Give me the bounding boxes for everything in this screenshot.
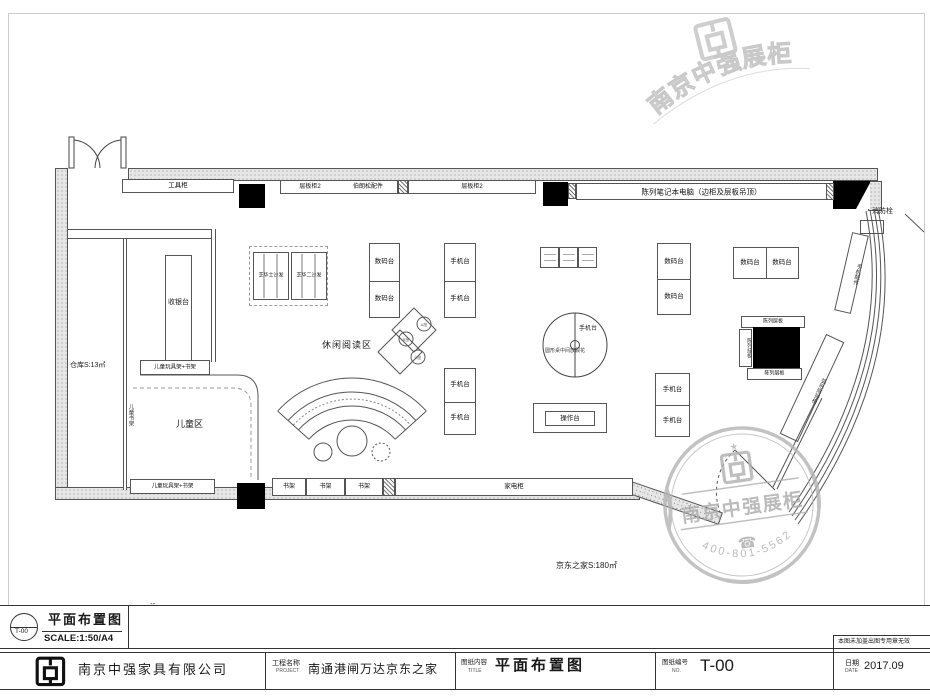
fire-hydrant-leader bbox=[905, 214, 924, 232]
company-logo bbox=[34, 655, 74, 691]
titleblock-div-1 bbox=[265, 652, 266, 689]
reading-benches bbox=[278, 378, 427, 461]
company-name: 南京中强家具有限公司 bbox=[78, 663, 228, 676]
kids-area-boundary bbox=[133, 375, 258, 480]
sofa-armrest-lines bbox=[264, 254, 315, 298]
number-label-en: NO. bbox=[672, 669, 681, 674]
titleblock-line-top bbox=[0, 605, 930, 606]
curved-curtain-wall bbox=[789, 209, 885, 524]
ref-title: 平面布置图 bbox=[48, 613, 123, 626]
content-label-en: TITLE bbox=[468, 669, 482, 674]
ref-underline bbox=[42, 631, 122, 632]
plan-linework: A座 B座 C座 bbox=[0, 0, 930, 698]
floor-plan-sheet: 工具柜 层板柜2 伯朗松配件 层板柜2 陈列笔记本电脑（边柜及层板吊顶） 消防栓… bbox=[0, 0, 930, 698]
seat-c-label: C座 bbox=[415, 354, 422, 360]
titleblock-line-mid1 bbox=[0, 648, 930, 649]
seat-a-label: A座 bbox=[421, 321, 428, 327]
titleblock-div-4 bbox=[833, 635, 834, 689]
date-label: 日期 bbox=[845, 660, 859, 667]
diamond-seats: A座 B座 C座 bbox=[378, 308, 436, 374]
titleblock-div-2 bbox=[455, 652, 456, 689]
project-label: 工程名称 bbox=[272, 660, 300, 667]
titleblock-line-bottom bbox=[0, 689, 930, 690]
round-phone-table bbox=[543, 313, 607, 377]
content-label: 图纸内容 bbox=[461, 660, 487, 667]
ref-bubble bbox=[10, 613, 38, 641]
date-label-en: DATE bbox=[845, 669, 858, 674]
ref-scale: SCALE:1:50/A4 bbox=[44, 634, 113, 644]
stamp-star-icon: ★ bbox=[729, 441, 738, 452]
date-value: 2017.09 bbox=[864, 661, 904, 672]
number-value: T-00 bbox=[700, 657, 734, 674]
content-value: 平面布置图 bbox=[495, 658, 585, 673]
seat-b-label: B座 bbox=[403, 336, 410, 342]
top-right-watermark: 南京中强展柜 bbox=[629, 2, 813, 125]
ref-code: T-00 bbox=[15, 629, 28, 636]
revision-dash: -- bbox=[150, 600, 155, 608]
column-notch bbox=[856, 183, 870, 209]
stamp-logo-icon bbox=[721, 452, 752, 483]
note-box-top bbox=[833, 635, 930, 636]
project-value: 南通港闸万达京东之家 bbox=[308, 663, 438, 675]
number-label: 图纸编号 bbox=[662, 660, 688, 667]
titleblock-div-ref bbox=[128, 605, 129, 649]
titleblock-div-3 bbox=[655, 652, 656, 689]
project-label-en: PROJECT bbox=[276, 669, 299, 674]
company-stamp: ★ 南京中强展柜 ☎ 400-801-5562 bbox=[655, 418, 829, 592]
titleblock-line-mid2 bbox=[0, 652, 930, 653]
double-door bbox=[69, 137, 126, 168]
validity-note: 本图未加盖出图专用章无效 bbox=[838, 639, 910, 645]
